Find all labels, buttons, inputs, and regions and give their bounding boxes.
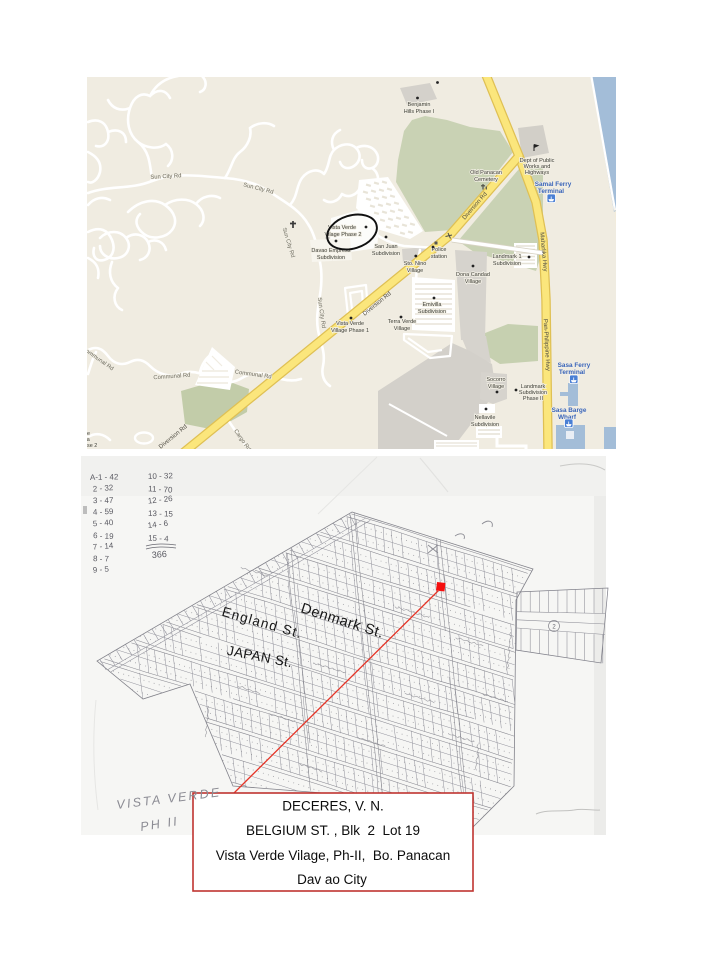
svg-text:9 - 5: 9 - 5: [93, 565, 110, 575]
svg-text:Dav ao City: Dav ao City: [297, 872, 367, 887]
svg-text:Village Phase 1: Village Phase 1: [331, 328, 369, 334]
svg-text:Dona Candad: Dona Candad: [456, 272, 490, 278]
svg-text:13 - 15: 13 - 15: [148, 509, 174, 519]
svg-text:4 - 59: 4 - 59: [93, 507, 114, 517]
svg-text:station: station: [431, 254, 447, 260]
svg-text:366: 366: [151, 549, 167, 560]
svg-text:Subdivision: Subdivision: [418, 309, 446, 315]
svg-text:Village: Village: [394, 326, 410, 332]
svg-text:Samal Ferry: Samal Ferry: [535, 181, 572, 188]
svg-text:Subdivision: Subdivision: [372, 251, 400, 257]
svg-text:Subdivision: Subdivision: [317, 255, 345, 261]
svg-text:Village: Village: [407, 268, 423, 274]
svg-text:Village: Village: [465, 279, 481, 285]
svg-text:8 - 7: 8 - 7: [93, 554, 110, 563]
svg-text:Phase II: Phase II: [523, 396, 544, 402]
svg-text:A-1 - 42: A-1 - 42: [90, 472, 119, 482]
svg-text:Subdivision: Subdivision: [493, 261, 521, 267]
svg-text:Vilage Phase 2: Vilage Phase 2: [325, 232, 362, 238]
svg-text:15 - 4: 15 - 4: [148, 534, 169, 544]
svg-text:6 - 19: 6 - 19: [93, 531, 114, 541]
svg-text:Vista Verde Vilage, Ph-II, Bo: Vista Verde Vilage, Ph-II, Bo. Panacan: [216, 848, 450, 863]
svg-text:San Juan: San Juan: [374, 244, 397, 250]
svg-text:7 - 14: 7 - 14: [93, 541, 115, 552]
svg-text:Sasa Ferry: Sasa Ferry: [558, 362, 591, 369]
svg-text:Socorro: Socorro: [486, 377, 505, 383]
svg-text:Sto. Nino: Sto. Nino: [404, 261, 427, 267]
svg-text:10 - 32: 10 - 32: [148, 471, 174, 481]
svg-text:DECERES, V. N.: DECERES, V. N.: [282, 799, 384, 814]
svg-text:Highways: Highways: [525, 170, 549, 176]
svg-text:3 - 47: 3 - 47: [93, 496, 114, 505]
svg-text:Old Panacan: Old Panacan: [470, 170, 502, 176]
svg-text:Cemetery: Cemetery: [474, 177, 498, 183]
svg-text:2 - 32: 2 - 32: [93, 483, 115, 494]
svg-text:Emivilla: Emivilla: [423, 302, 443, 308]
svg-text:Vista Verde: Vista Verde: [336, 321, 364, 327]
svg-text:Benjamin: Benjamin: [408, 102, 431, 108]
svg-text:ase 2: ase 2: [84, 443, 97, 449]
svg-text:Hills Phase I: Hills Phase I: [404, 109, 435, 115]
svg-text:BELGIUM ST. , Blk 2 Lot 19: BELGIUM ST. , Blk 2 Lot 19: [246, 823, 420, 838]
svg-text:Sasa Barge: Sasa Barge: [552, 407, 587, 414]
svg-text:Village: Village: [488, 384, 504, 390]
svg-text:11 - 70: 11 - 70: [148, 484, 173, 494]
svg-text:5 - 40: 5 - 40: [93, 518, 115, 529]
svg-text:Landmark 1: Landmark 1: [492, 254, 521, 260]
svg-text:Subdivision: Subdivision: [471, 422, 499, 428]
svg-text:Terra Verde: Terra Verde: [388, 319, 416, 325]
svg-text:Nellavile: Nellavile: [475, 415, 496, 421]
